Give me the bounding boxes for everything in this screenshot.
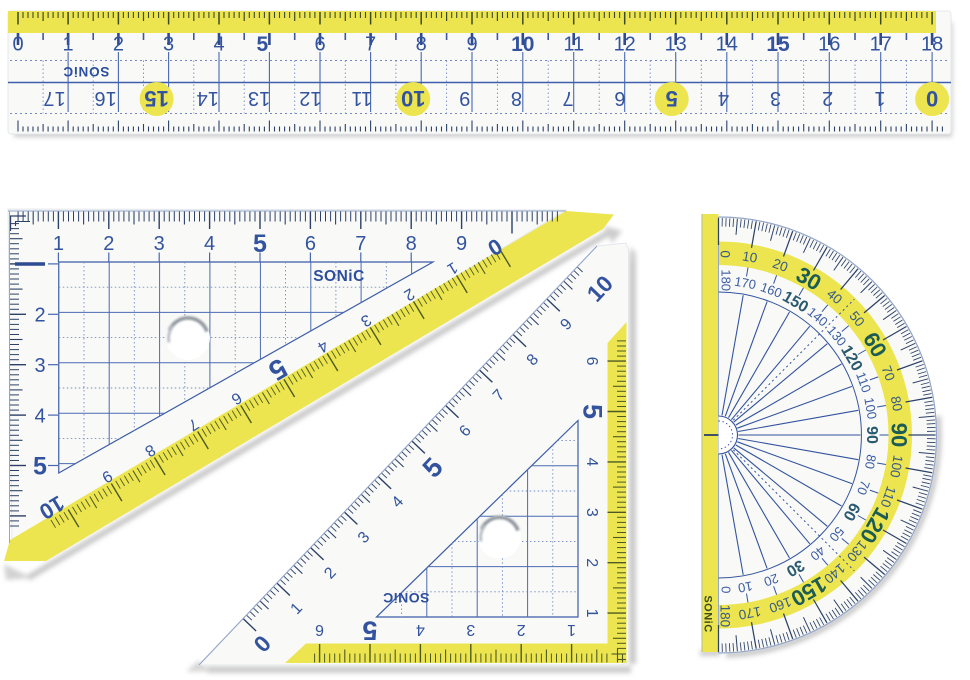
svg-text:80: 80 <box>862 453 879 470</box>
svg-text:3: 3 <box>34 355 45 377</box>
svg-text:6: 6 <box>583 357 600 366</box>
svg-text:5: 5 <box>33 453 47 481</box>
svg-text:10: 10 <box>737 578 754 595</box>
svg-text:SONiC: SONiC <box>383 590 430 606</box>
svg-text:3: 3 <box>466 621 475 638</box>
svg-text:6: 6 <box>614 87 625 109</box>
svg-text:180: 180 <box>718 605 733 628</box>
svg-text:4: 4 <box>718 87 729 109</box>
svg-text:1: 1 <box>567 621 576 638</box>
svg-text:4: 4 <box>204 233 215 255</box>
svg-text:0: 0 <box>12 34 23 56</box>
svg-text:10: 10 <box>741 248 758 265</box>
svg-text:5: 5 <box>257 33 269 56</box>
svg-text:14: 14 <box>197 87 219 109</box>
svg-text:90: 90 <box>863 426 880 444</box>
svg-text:4: 4 <box>416 621 425 638</box>
svg-text:8: 8 <box>406 233 417 255</box>
svg-text:SONiC: SONiC <box>313 268 365 285</box>
svg-text:2: 2 <box>517 621 526 638</box>
svg-text:5: 5 <box>666 86 678 111</box>
svg-text:1: 1 <box>53 233 64 255</box>
svg-text:0: 0 <box>718 250 733 258</box>
svg-text:3: 3 <box>583 508 600 517</box>
svg-text:3: 3 <box>154 233 165 255</box>
svg-text:2: 2 <box>583 558 600 567</box>
svg-text:7: 7 <box>355 233 366 255</box>
svg-text:7: 7 <box>563 87 574 109</box>
svg-text:1: 1 <box>583 609 600 618</box>
svg-text:13: 13 <box>248 87 270 109</box>
svg-text:16: 16 <box>94 87 116 109</box>
svg-text:180: 180 <box>718 269 733 291</box>
svg-text:9: 9 <box>456 233 467 255</box>
svg-text:4: 4 <box>34 405 45 427</box>
svg-text:0: 0 <box>718 586 733 593</box>
svg-text:4: 4 <box>583 457 600 466</box>
svg-text:6: 6 <box>315 621 324 638</box>
svg-text:6: 6 <box>305 233 316 255</box>
svg-text:5: 5 <box>577 404 607 419</box>
svg-text:0: 0 <box>926 86 938 111</box>
svg-text:SONiC: SONiC <box>702 595 714 632</box>
svg-text:11: 11 <box>351 87 372 109</box>
svg-text:90: 90 <box>887 423 912 447</box>
svg-text:3: 3 <box>770 87 781 109</box>
svg-text:1: 1 <box>874 87 885 109</box>
svg-text:SONiC: SONiC <box>63 64 110 79</box>
svg-text:2: 2 <box>822 87 833 109</box>
svg-text:15: 15 <box>144 86 168 111</box>
svg-text:8: 8 <box>511 87 522 109</box>
svg-text:2: 2 <box>103 233 114 255</box>
svg-text:10: 10 <box>401 86 425 111</box>
svg-text:80: 80 <box>888 395 905 412</box>
svg-text:5: 5 <box>362 615 377 645</box>
svg-text:17: 17 <box>43 87 65 109</box>
svg-text:9: 9 <box>459 87 470 109</box>
svg-text:12: 12 <box>299 87 321 109</box>
svg-text:2: 2 <box>34 305 45 327</box>
